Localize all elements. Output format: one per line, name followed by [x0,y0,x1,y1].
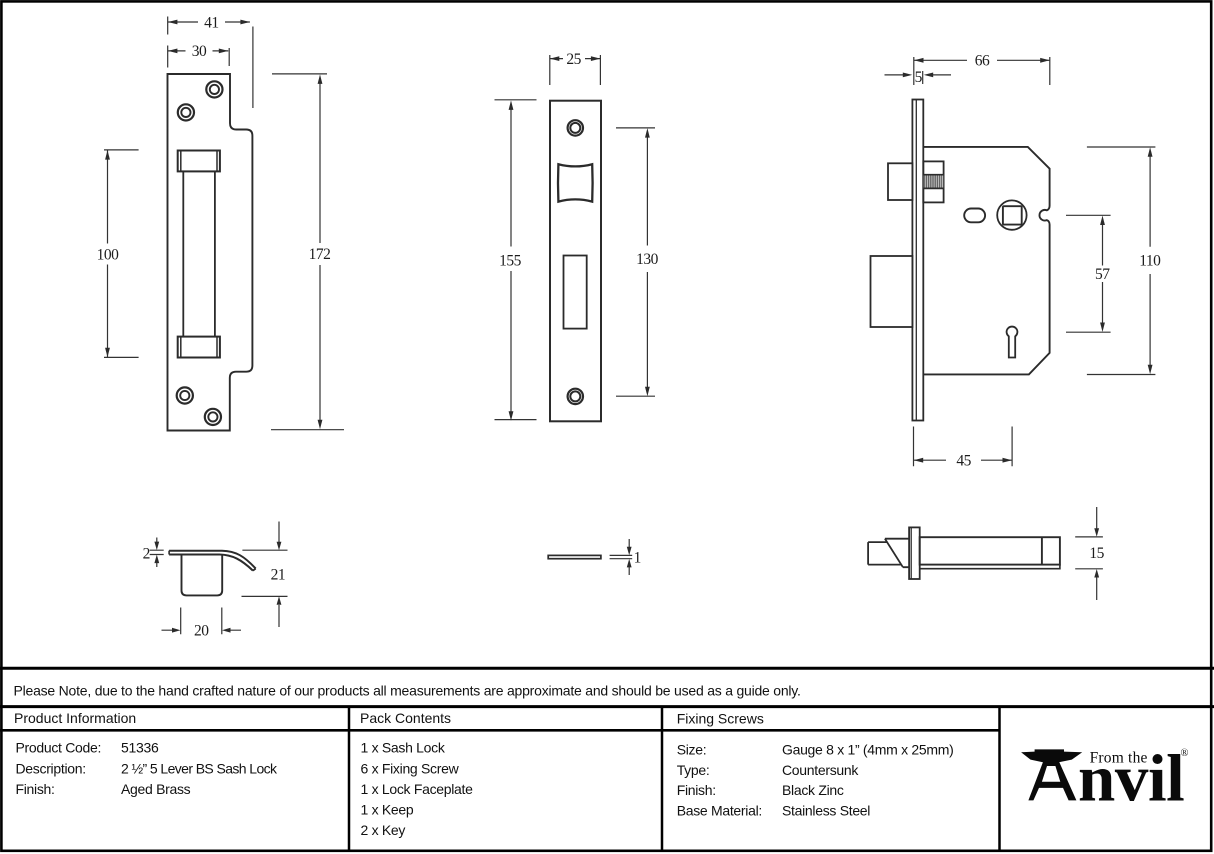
svg-text:5: 5 [915,69,923,86]
svg-text:1: 1 [634,549,641,566]
svg-text:130: 130 [636,251,659,268]
svg-text:66: 66 [975,53,990,70]
svg-text:57: 57 [1095,266,1110,283]
svg-text:110: 110 [1139,253,1161,270]
svg-text:Type:: Type: [677,762,710,778]
svg-text:Black Zinc: Black Zinc [782,782,844,798]
svg-text:100: 100 [97,247,120,264]
svg-text:Base Material:: Base Material: [677,802,762,818]
svg-text:Product Code:: Product Code: [16,740,102,756]
svg-text:45: 45 [956,453,971,470]
svg-text:Pack Contents: Pack Contents [360,710,451,726]
svg-text:Stainless Steel: Stainless Steel [782,802,870,818]
svg-text:20: 20 [194,623,209,640]
svg-text:Description:: Description: [16,761,86,777]
svg-text:1 x Lock Faceplate: 1 x Lock Faceplate [361,781,474,797]
svg-text:Product Information: Product Information [14,710,136,726]
svg-text:6 x Fixing Screw: 6 x Fixing Screw [361,761,460,777]
svg-text:2 x Key: 2 x Key [361,822,406,838]
svg-text:1 x Sash Lock: 1 x Sash Lock [361,740,446,756]
svg-text:41: 41 [204,14,219,31]
svg-text:172: 172 [309,246,331,263]
svg-text:25: 25 [566,51,581,68]
svg-text:Countersunk: Countersunk [782,762,859,778]
svg-text:51336: 51336 [121,740,159,756]
svg-text:Finish:: Finish: [16,781,55,797]
svg-text:Size:: Size: [677,742,707,758]
svg-text:Gauge 8 x 1” (4mm x 25mm): Gauge 8 x 1” (4mm x 25mm) [782,742,953,758]
svg-text:21: 21 [271,567,286,584]
svg-text:Aged Brass: Aged Brass [121,781,191,797]
svg-text:1 x Keep: 1 x Keep [361,802,414,818]
svg-text:2: 2 [143,546,150,563]
svg-text:Please Note, due to the hand c: Please Note, due to the hand crafted nat… [14,683,801,699]
svg-text:nvil: nvil [1078,742,1184,816]
svg-text:155: 155 [499,253,522,270]
svg-text:Fixing Screws: Fixing Screws [677,710,764,726]
svg-text:2 ½” 5 Lever BS Sash Lock: 2 ½” 5 Lever BS Sash Lock [121,761,278,777]
svg-text:Finish:: Finish: [677,782,716,798]
svg-text:30: 30 [192,43,207,60]
svg-text:®: ® [1181,748,1189,759]
svg-text:15: 15 [1089,545,1104,562]
